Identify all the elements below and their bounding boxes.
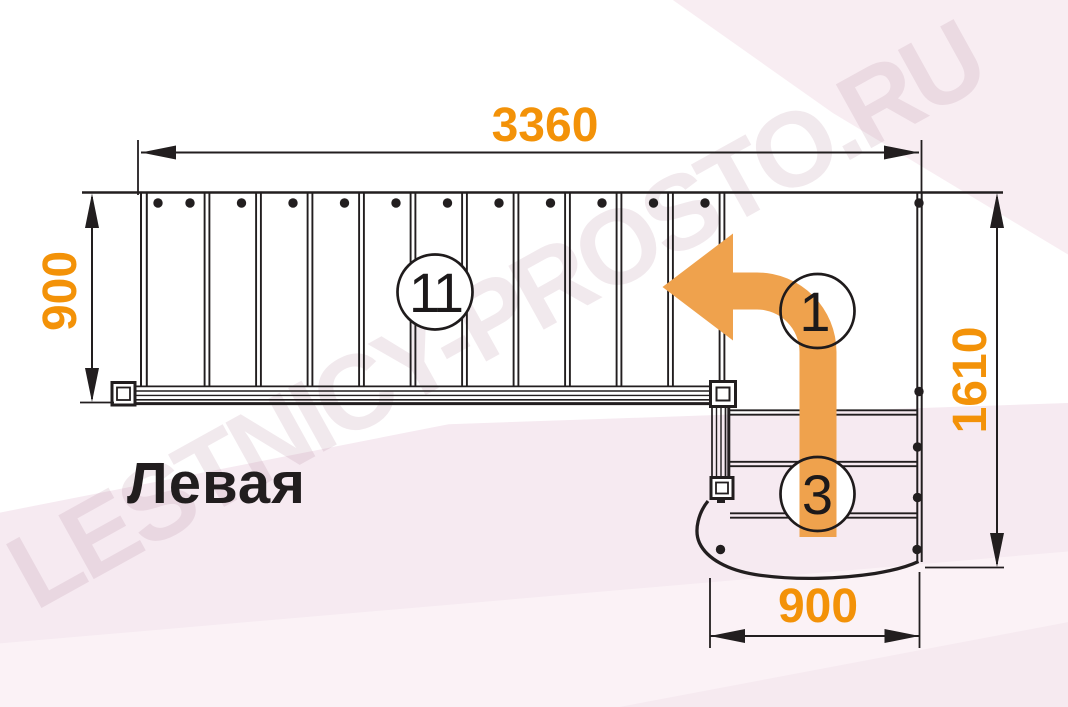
lower-newel-post: [711, 478, 733, 499]
upper-flight-baluster-dots: [153, 198, 709, 207]
upper-flight-count: 11: [409, 261, 462, 324]
dimension-bottom-value: 900: [778, 580, 858, 633]
dimension-right-value: 1610: [944, 327, 997, 434]
dimension-bottom: 900: [710, 572, 920, 648]
corner-newel-post: [711, 382, 736, 407]
dimension-left: 900: [34, 194, 114, 403]
first-step-number: 1: [799, 280, 830, 343]
lower-newel-foot: [717, 499, 725, 504]
upper-flight-stringer-band: [134, 386, 710, 403]
lower-flight-rail-band: [712, 407, 729, 479]
plan-title: Левая: [127, 450, 306, 517]
dimension-top: 3360: [138, 99, 922, 195]
staircase-plan-canvas: LESTNICY-PROSTO.RU: [0, 0, 1068, 707]
dimension-top-value: 3360: [492, 99, 599, 152]
dimension-right: 1610: [925, 193, 1004, 568]
lower-flight-count: 3: [802, 463, 833, 526]
dimension-left-value: 900: [34, 251, 87, 331]
left-newel-post: [112, 383, 135, 406]
staircase-drawing: 11 1 3 3360 900 1610: [0, 0, 1068, 707]
